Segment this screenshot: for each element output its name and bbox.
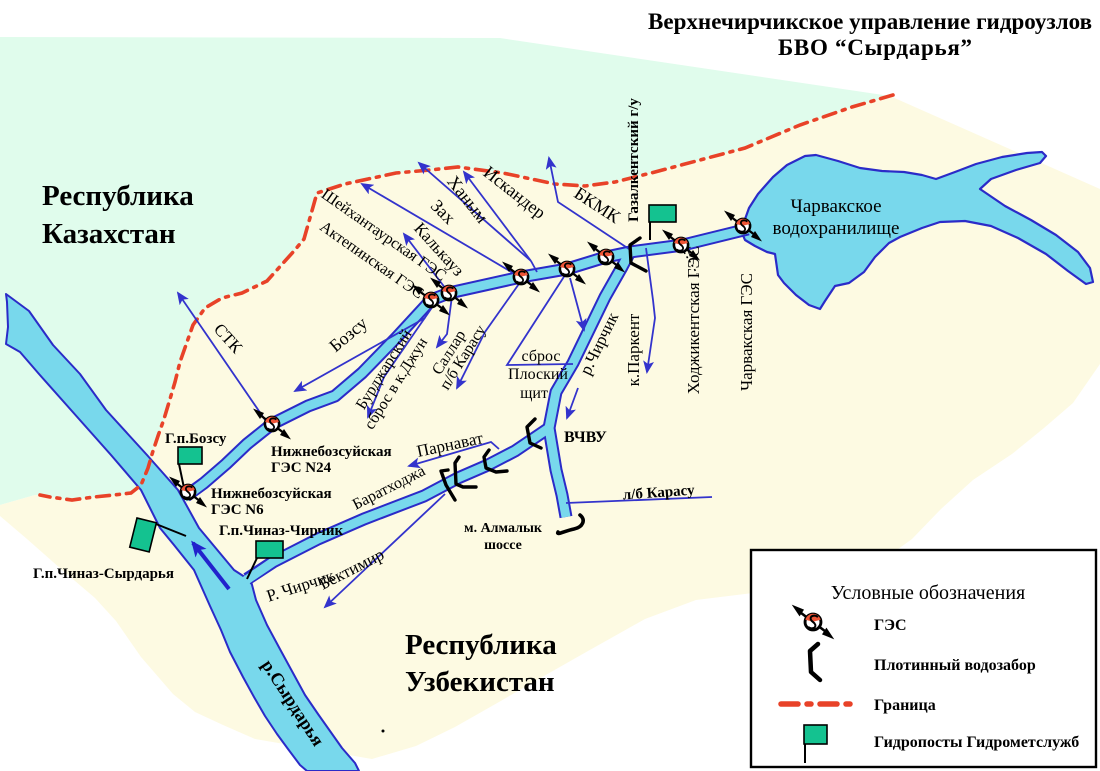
svg-text:ГЭС N6: ГЭС N6 xyxy=(211,502,264,518)
svg-text:к.Паркент: к.Паркент xyxy=(624,313,643,386)
svg-text:Верхнечирчикское управление ги: Верхнечирчикское управление гидроузлов xyxy=(648,9,1092,34)
svg-text:Ходжикентская ГЭС: Ходжикентская ГЭС xyxy=(684,246,703,394)
svg-text:Граница: Граница xyxy=(874,697,936,714)
svg-text:Республика: Республика xyxy=(405,629,557,661)
svg-text:Чарвакское: Чарвакское xyxy=(790,196,881,217)
svg-text:Гидропосты Гидрометслужб: Гидропосты Гидрометслужб xyxy=(874,734,1079,751)
svg-text:Нижнебозсуйская: Нижнебозсуйская xyxy=(271,444,392,460)
svg-text:м. Алмалык: м. Алмалык xyxy=(464,521,543,536)
svg-text:Г.п.Бозсу: Г.п.Бозсу xyxy=(165,431,227,447)
svg-text:Газалкентский г/у: Газалкентский г/у xyxy=(626,98,642,222)
svg-text:БВО “Сырдарья”: БВО “Сырдарья” xyxy=(778,35,972,60)
svg-text:ГЭС N24: ГЭС N24 xyxy=(271,460,332,476)
svg-text:щит: щит xyxy=(520,385,548,402)
svg-text:Узбекистан: Узбекистан xyxy=(405,666,555,698)
svg-text:ВЧВУ: ВЧВУ xyxy=(564,429,607,446)
svg-text:Условные обозначения: Условные обозначения xyxy=(831,582,1025,604)
svg-text:Г.п.Чиназ-Чирчик: Г.п.Чиназ-Чирчик xyxy=(219,523,344,539)
svg-text:Нижнебозсуйская: Нижнебозсуйская xyxy=(211,486,332,502)
svg-text:шоссе: шоссе xyxy=(484,538,522,553)
svg-text:Чарвакская ГЭС: Чарвакская ГЭС xyxy=(737,273,756,391)
svg-text:сброс: сброс xyxy=(522,348,561,365)
svg-text:Плоский: Плоский xyxy=(508,366,568,383)
svg-text:Казахстан: Казахстан xyxy=(42,218,176,250)
svg-text:Плотинный водозабор: Плотинный водозабор xyxy=(874,657,1036,674)
svg-text:Республика: Республика xyxy=(42,180,194,212)
svg-text:ГЭС: ГЭС xyxy=(874,617,907,634)
svg-text:водохранилище: водохранилище xyxy=(773,218,900,239)
svg-text:Г.п.Чиназ-Сырдарья: Г.п.Чиназ-Сырдарья xyxy=(33,566,174,582)
